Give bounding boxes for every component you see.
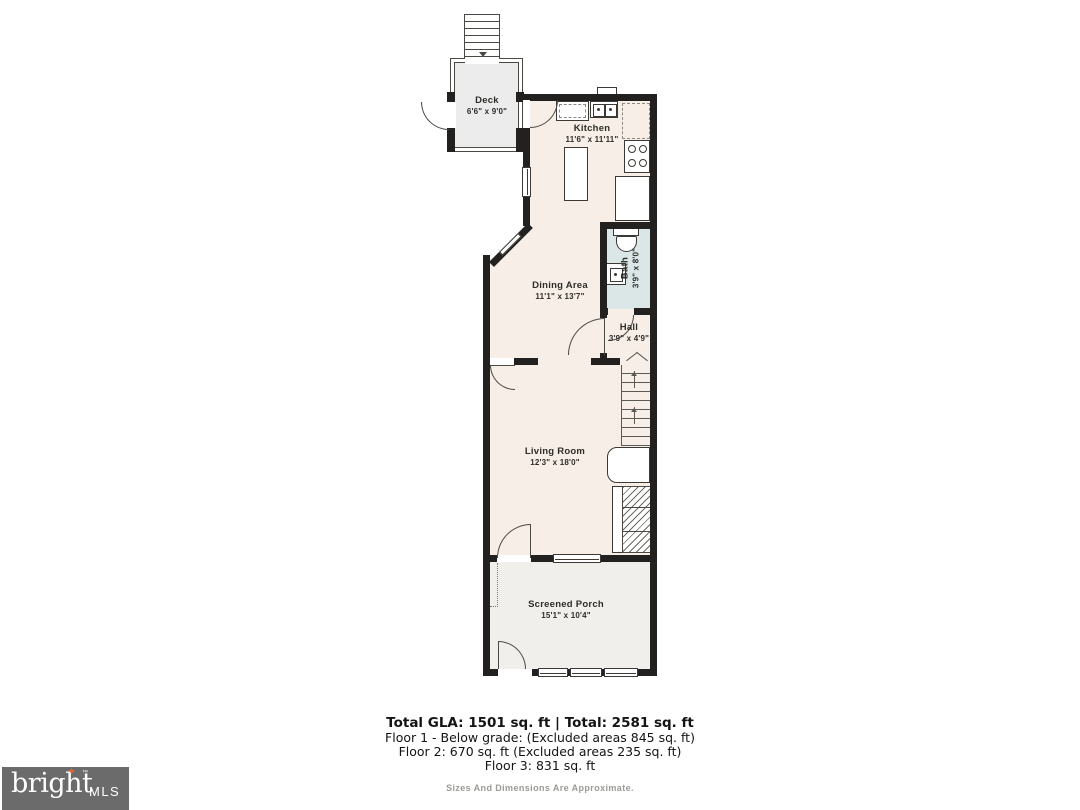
room-dims: 6'6" x 9'0" — [467, 107, 507, 116]
deck-door-opening — [448, 102, 456, 128]
burner — [639, 145, 647, 153]
room-dims: 11'6" x 11'11" — [566, 135, 619, 144]
burner — [639, 159, 647, 167]
faucet-dot — [597, 108, 600, 111]
wall — [650, 94, 657, 676]
faucet-dot — [614, 273, 617, 276]
wall — [523, 128, 530, 167]
understair-closet — [607, 447, 650, 483]
room-name: Deck — [467, 95, 507, 106]
window — [522, 167, 531, 197]
wall — [591, 358, 620, 365]
logo-trademark: ™ — [82, 770, 88, 776]
room-name: Bath — [620, 248, 631, 288]
refrigerator — [615, 176, 650, 221]
burner — [628, 159, 636, 167]
fireplace-divider — [623, 507, 651, 508]
wall — [523, 196, 530, 226]
wall — [600, 308, 608, 315]
fireplace-divider — [623, 531, 651, 532]
room-name: Kitchen — [566, 123, 619, 134]
stairs-chevron — [626, 351, 648, 362]
burner — [628, 145, 636, 153]
window — [538, 668, 568, 677]
room-dims: 3'9" x 4'9" — [609, 334, 649, 343]
room-label-living: Living Room 12'3" x 18'0" — [525, 446, 585, 467]
room-name: Dining Area — [532, 280, 588, 291]
wall — [600, 222, 657, 229]
doorway — [523, 100, 530, 128]
porch-dotted-line — [490, 606, 498, 607]
total-gla-line: Total GLA: 1501 sq. ft | Total: 2581 sq.… — [0, 715, 1080, 731]
wall — [600, 222, 607, 318]
logo-brand-text: bright — [11, 768, 92, 799]
room-dims: 11'1" x 13'7" — [532, 292, 588, 301]
room-label-hall: Hall 3'9" x 4'9" — [609, 322, 649, 343]
kitchen-sink — [590, 101, 618, 118]
wall — [634, 308, 657, 315]
logo-spark-icon: ✦ — [67, 765, 76, 778]
room-label-porch: Screened Porch 15'1" x 10'4" — [528, 599, 604, 620]
room-label-kitchen: Kitchen 11'6" x 11'11" — [566, 123, 619, 144]
window — [553, 554, 601, 563]
wall — [483, 255, 490, 676]
floor1-line: Floor 1 - Below grade: (Excluded areas 8… — [0, 731, 1080, 745]
upper-cabinets — [622, 103, 650, 139]
room-dims: 3'9" x 8'0" — [632, 248, 641, 288]
window — [604, 668, 638, 677]
kitchen-island — [564, 147, 588, 201]
room-label-bath: Bath 3'9" x 8'0" — [620, 248, 641, 288]
doorway — [498, 669, 532, 676]
room-label-dining: Dining Area 11'1" x 13'7" — [532, 280, 588, 301]
stairs-up-arrow — [634, 407, 635, 424]
faucet-dot — [609, 108, 612, 111]
fireplace — [622, 486, 652, 553]
stairs-up-arrow — [634, 371, 635, 388]
deck-post — [447, 92, 455, 102]
dishwasher — [559, 104, 586, 118]
room-name: Screened Porch — [528, 599, 604, 610]
wall — [514, 358, 538, 365]
stair-direction-arrow — [479, 52, 487, 61]
floor-plan-page: Deck 6'6" x 9'0" Kitchen 11'6" x 11'11" … — [0, 0, 1080, 810]
porch-dotted-line — [497, 563, 498, 607]
deck-post — [447, 128, 455, 152]
window — [570, 668, 602, 677]
logo-mls-text: MLS — [89, 784, 120, 799]
room-label-deck: Deck 6'6" x 9'0" — [467, 95, 507, 116]
room-name: Living Room — [525, 446, 585, 457]
door-arc — [421, 102, 449, 130]
floor3-line: Floor 3: 831 sq. ft — [0, 759, 1080, 773]
room-dims: 12'3" x 18'0" — [525, 458, 585, 467]
room-dims: 15'1" x 10'4" — [528, 611, 604, 620]
stove — [624, 140, 650, 173]
bright-mls-logo: bright ✦ ™ MLS — [2, 767, 129, 810]
floor2-line: Floor 2: 670 sq. ft (Excluded areas 235 … — [0, 745, 1080, 759]
toilet-tank — [613, 228, 639, 236]
doorway — [490, 358, 514, 365]
area-summary: Total GLA: 1501 sq. ft | Total: 2581 sq.… — [0, 715, 1080, 773]
room-name: Hall — [609, 322, 649, 333]
disclaimer-text: Sizes And Dimensions Are Approximate. — [0, 783, 1080, 793]
